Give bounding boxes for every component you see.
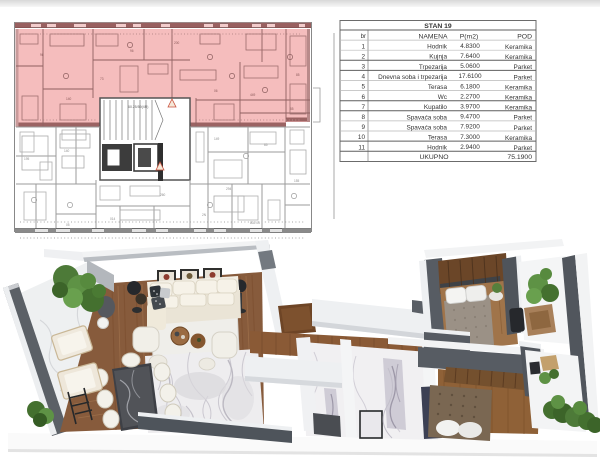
svg-text:73: 73 [100,77,104,81]
svg-text:85: 85 [290,107,294,111]
svg-text:014: 014 [110,217,116,221]
svg-text:Parket: Parket [514,125,533,132]
svg-text:UKUPNO: UKUPNO [419,154,448,161]
svg-text:2.2700: 2.2700 [460,93,480,100]
svg-text:7.9200: 7.9200 [460,124,480,131]
svg-text:1: 1 [361,43,365,50]
svg-text:Spavaća soba: Spavaća soba [406,114,447,121]
svg-text:294: 294 [226,187,232,191]
svg-text:POD: POD [517,33,532,40]
svg-text:155: 155 [294,179,300,183]
svg-text:05: 05 [66,223,70,227]
svg-text:Keramika: Keramika [505,44,532,51]
svg-text:3.9700: 3.9700 [460,104,480,111]
svg-text:Parket: Parket [514,74,533,81]
svg-text:2.9400: 2.9400 [460,144,480,151]
svg-text:Wc: Wc [438,94,448,101]
svg-text:11: 11 [358,144,365,151]
svg-text:96: 96 [40,53,44,57]
svg-text:9: 9 [361,124,365,131]
svg-text:7.6400: 7.6400 [460,53,480,60]
svg-text:7: 7 [361,104,365,111]
svg-text:85: 85 [296,73,300,77]
svg-text:2: 2 [361,53,365,60]
svg-text:8: 8 [361,114,365,121]
svg-text:Parket: Parket [514,145,533,152]
svg-text:17.6100: 17.6100 [458,73,482,80]
svg-text:9.4700: 9.4700 [460,114,480,121]
svg-text:6.1800: 6.1800 [460,83,480,90]
svg-text:4: 4 [361,74,365,81]
svg-text:P(m2): P(m2) [460,33,479,40]
svg-text:Trpezarija: Trpezarija [419,64,448,71]
svg-text:Parket: Parket [514,64,533,71]
svg-text:Terasa: Terasa [428,84,448,91]
svg-text:Kupatilo: Kupatilo [424,104,448,111]
svg-text:Terasa: Terasa [428,135,448,142]
svg-text:Spavaća soba: Spavaća soba [406,124,447,131]
svg-text:STAN 19: STAN 19 [424,23,452,30]
svg-text:3: 3 [361,64,365,71]
svg-text:5: 5 [361,84,365,91]
svg-text:Keramika: Keramika [505,84,532,91]
svg-text:Keramika: Keramika [505,95,532,102]
svg-text:140: 140 [66,97,72,101]
svg-text:Kujnja: Kujnja [429,54,447,61]
svg-text:449: 449 [250,93,256,97]
svg-text:Parket: Parket [514,115,533,122]
svg-text:10: 10 [358,134,366,141]
svg-text:2N: 2N [202,213,207,217]
svg-text:149: 149 [214,137,220,141]
svg-text:260: 260 [160,193,166,197]
svg-text:br: br [361,34,366,40]
svg-text:6: 6 [361,94,365,101]
svg-text:195: 195 [24,157,30,161]
svg-text:4.8300: 4.8300 [460,43,480,50]
svg-text:06: 06 [214,89,218,93]
svg-text:Keramika: Keramika [505,105,532,112]
svg-text:Keramika: Keramika [505,54,532,61]
svg-text:140: 140 [64,149,70,153]
svg-text:Keramika: Keramika [505,135,532,142]
svg-text:NAMENA: NAMENA [418,33,448,40]
svg-text:Dnevna soba i trpezarija: Dnevna soba i trpezarija [378,74,447,81]
svg-text:Hodnik: Hodnik [427,145,448,152]
svg-text:85: 85 [264,143,268,147]
svg-text:60.25/59(4R): 60.25/59(4R) [128,105,148,109]
svg-text:75.1900: 75.1900 [507,154,532,161]
svg-text:200: 200 [174,41,180,45]
svg-text:5.0600: 5.0600 [460,63,480,70]
svg-text:96: 96 [130,49,134,53]
svg-text:7.3000: 7.3000 [460,134,480,141]
svg-text:Hodnik: Hodnik [427,44,448,51]
